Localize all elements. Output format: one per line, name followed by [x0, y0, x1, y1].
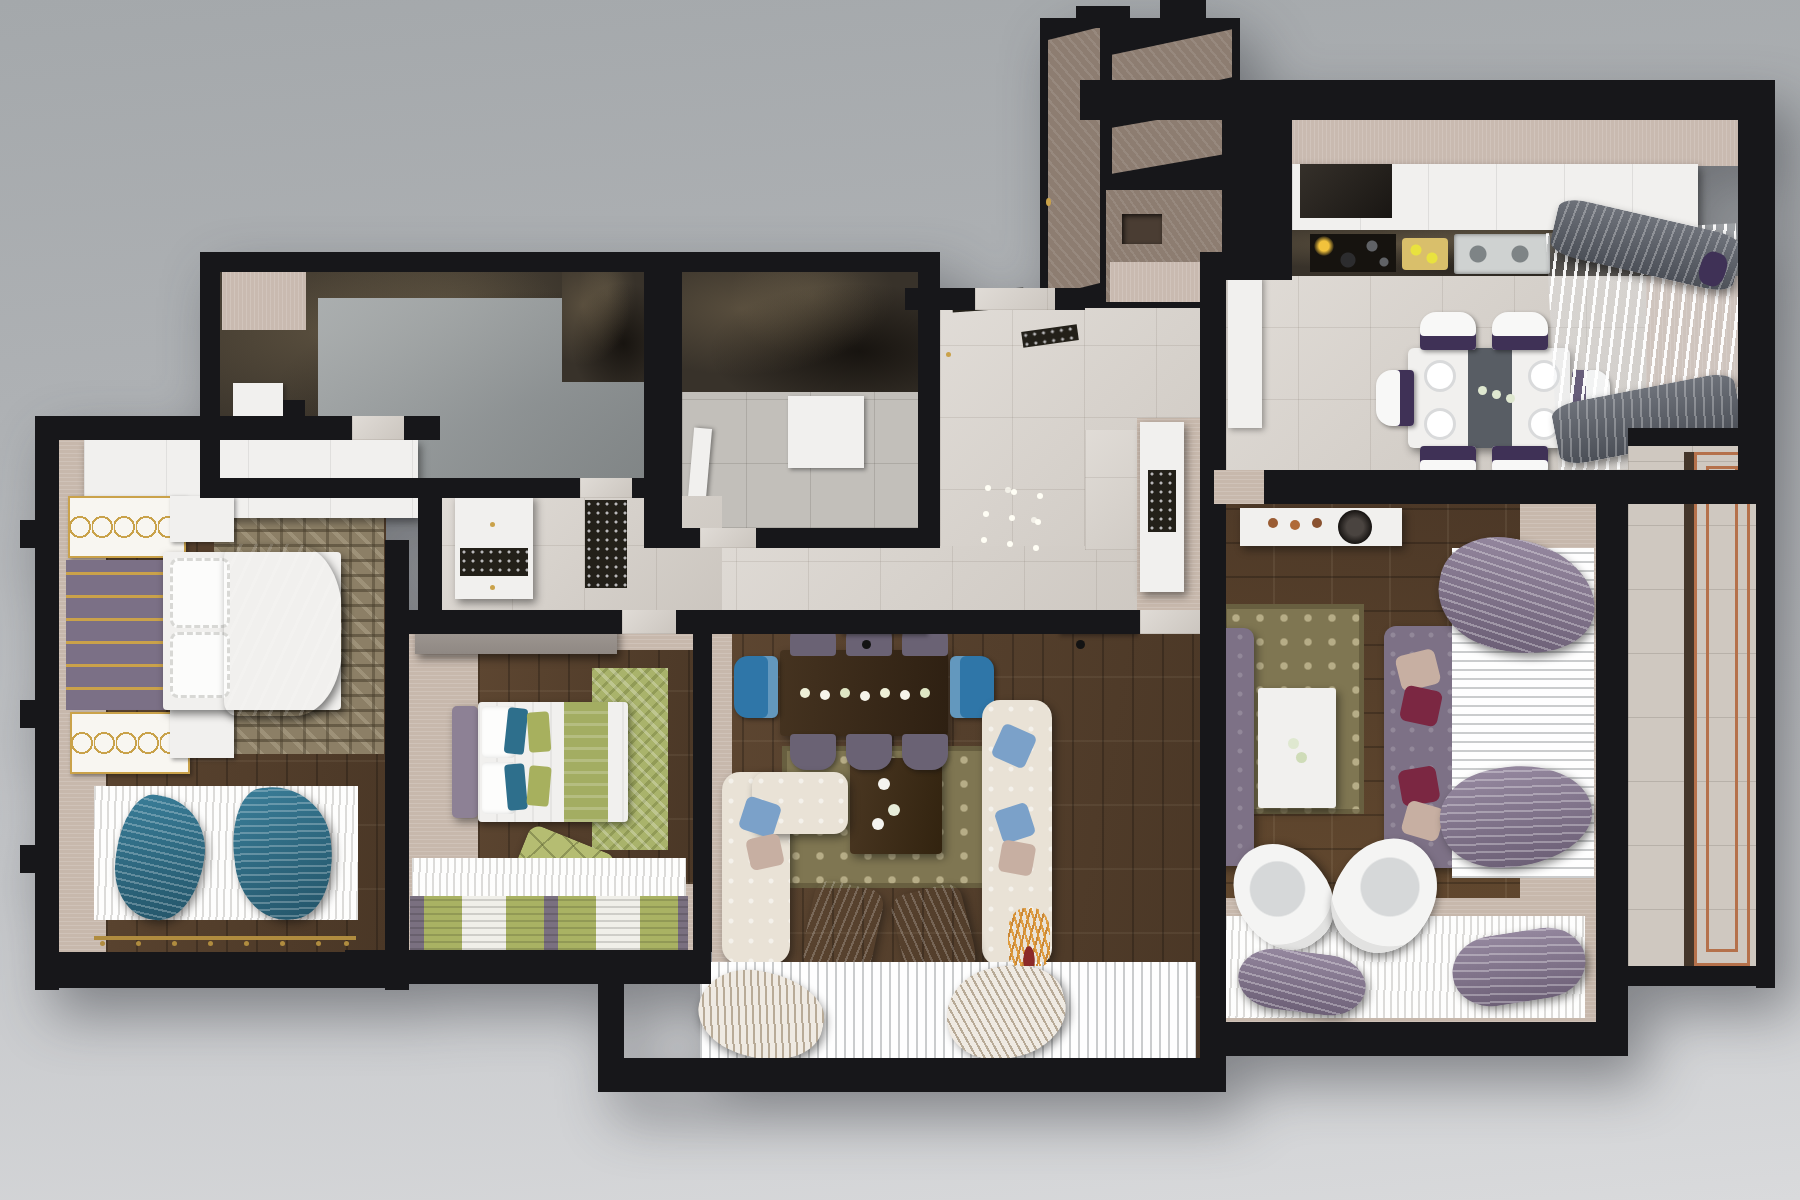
living-side-chair-s3	[902, 734, 948, 770]
wall-bathroom-left	[200, 252, 220, 498]
family-pillow-maroon-1	[1399, 684, 1444, 727]
room-family	[0, 0, 1800, 1200]
kitchen-extractor-hood	[1300, 164, 1392, 218]
balcony-floor	[1628, 446, 1756, 974]
family-fur-rug	[1225, 916, 1585, 1018]
wall-stub-master-left-1	[20, 520, 35, 548]
wall-corridor-left	[418, 478, 442, 618]
shower-room-upper	[682, 272, 918, 394]
living-end-chair-e	[950, 656, 994, 718]
room-living	[0, 0, 1800, 1200]
wall-bathroom-top	[200, 252, 660, 272]
kitchen-gas-hob	[1310, 234, 1396, 272]
entry-top-stub	[1076, 6, 1130, 28]
living-pillow-blush-1	[745, 833, 785, 871]
screenshot-canvas	[0, 0, 1800, 1200]
dining-plate-1	[1424, 360, 1456, 392]
bathroom-floor	[220, 270, 644, 478]
wall-balcony-bottom	[1628, 966, 1775, 986]
dining-chair-n2	[1492, 312, 1548, 350]
balcony-copper-rail-inner	[1706, 466, 1738, 952]
bedroom2-wall-band	[403, 628, 693, 952]
living-side-chair-s2	[846, 734, 892, 770]
dining-chair-n1	[1420, 312, 1476, 350]
family-south-band	[1215, 898, 1596, 1022]
master-purple-duvet	[224, 544, 342, 716]
living-pillow-blue-2	[990, 722, 1038, 770]
dining-table-runner	[1468, 348, 1512, 448]
dining-plate-4	[1528, 408, 1560, 440]
living-rug	[782, 746, 1010, 888]
bathroom-marble-column	[562, 272, 644, 382]
living-floor	[712, 632, 1202, 1062]
master-gold-ornament-panel-south	[70, 712, 190, 774]
wall-family-right	[1596, 488, 1628, 1048]
door-opening-shower	[700, 528, 756, 548]
master-gold-curtain-rod	[94, 936, 356, 940]
family-rug	[1222, 604, 1364, 814]
family-east-wall-cap	[1520, 498, 1596, 968]
dining-flower-vases	[1478, 386, 1487, 395]
family-coffee-table	[1258, 688, 1336, 808]
kitchen-wall-band	[1226, 118, 1740, 166]
dining-chair-w	[1376, 370, 1414, 426]
living-window-sheer	[700, 962, 1196, 1058]
living-coffee-table-flowers	[878, 778, 890, 790]
family-egg-chair-1	[1213, 824, 1353, 968]
balcony-copper-rail-outer	[1694, 452, 1750, 966]
living-side-chair-s1	[790, 734, 836, 770]
bedroom2-headboard	[452, 706, 478, 818]
dining-table	[1408, 348, 1570, 448]
family-coffee-table-flowers	[1288, 738, 1299, 749]
wall-living-top	[712, 610, 1202, 634]
kitchen-drape-north	[1548, 196, 1744, 295]
living-end-chair-w	[734, 656, 778, 718]
bedroom2-pillow-white-2	[482, 762, 516, 814]
door-opening-bathroom	[580, 478, 632, 498]
hall-spotlights	[985, 485, 991, 491]
master-teal-throw-2	[226, 781, 340, 926]
wall-bedroom2-bottom	[345, 950, 711, 984]
door-opening-bedroom2	[622, 610, 676, 634]
hall-cabinet	[455, 495, 533, 599]
living-dining-table	[780, 650, 948, 736]
master-pillow-ruffled-1	[170, 558, 230, 628]
shower-tray	[788, 396, 864, 468]
hall-floor-main	[940, 308, 1202, 634]
living-blue-chair-2	[888, 881, 984, 1001]
bedroom2-pillow-green-2	[526, 765, 551, 807]
wall-living-family	[1200, 252, 1226, 1072]
wall-master-left	[35, 416, 59, 990]
apartment-floor-plan	[0, 0, 1800, 1200]
balcony-timber-strip	[1684, 452, 1694, 966]
door-opening-living	[1140, 610, 1200, 634]
wall-stub-master-left-3	[20, 845, 35, 873]
master-teal-throw-1	[108, 790, 212, 925]
hall-runner-mat	[585, 500, 627, 588]
room-kitchen	[0, 0, 1800, 1200]
master-geometric-rug	[214, 476, 384, 754]
living-wall-speaker-1	[862, 640, 871, 649]
bedroom2-mattress	[478, 702, 628, 822]
wall-kitchen-vestibule-chunk	[1222, 80, 1292, 280]
family-floor-drape-left	[1235, 944, 1369, 1019]
master-gold-ornament-panel-north	[68, 496, 186, 558]
living-sectional-left-arm	[722, 772, 790, 964]
entry-wood-fin	[1048, 27, 1100, 296]
kitchen-drape-south	[1550, 371, 1744, 467]
family-pillow-blush-2	[1400, 799, 1446, 842]
kitchen-counter	[1292, 230, 1698, 276]
wall-kitchen-bottom	[1202, 470, 1740, 504]
master-pillow-ruffled-2	[170, 632, 230, 698]
hall-display-cabinet	[1140, 422, 1184, 592]
living-pillow-blue-3	[994, 802, 1037, 845]
kitchen-tall-cabinet	[1228, 276, 1262, 428]
master-bed-base	[163, 552, 341, 710]
living-blue-chair-1	[796, 878, 886, 994]
dining-chair-e	[1572, 370, 1610, 426]
bedroom2-pouf	[510, 823, 617, 911]
bedroom2-pillow-teal-2	[504, 763, 528, 811]
living-sectional-corner	[752, 772, 848, 834]
hall-cabinet-gold-pull	[490, 522, 495, 527]
master-floor	[106, 438, 386, 954]
room-entry	[0, 0, 1800, 1200]
entry-recessed-ceiling-niche	[1122, 214, 1162, 244]
bedroom2-striped-curtain	[410, 896, 688, 950]
bathroom-wall-ledge	[222, 272, 306, 330]
family-window-sheer	[1452, 548, 1594, 878]
wall-living-bottom	[598, 1058, 1226, 1092]
shower-room-floor	[682, 392, 918, 528]
bedroom2-fur-runner	[412, 858, 686, 898]
family-swag-north	[1429, 527, 1604, 665]
kitchen-floor	[1226, 276, 1646, 472]
family-egg-chair-2	[1312, 819, 1458, 971]
hall-cabinet-gold-pull-2	[490, 585, 495, 590]
master-nightstand-north	[170, 496, 234, 542]
bathroom-glass-screen	[318, 298, 644, 478]
family-floor-drape-right	[1447, 922, 1590, 1012]
wall-balcony-top	[1628, 428, 1775, 446]
family-pillow-blush-1	[1394, 648, 1442, 693]
family-console-copper-decor	[1268, 518, 1278, 528]
living-dried-gold-plant	[1008, 908, 1050, 966]
door-opening-master	[352, 416, 404, 440]
wall-kitchen-top	[1080, 80, 1775, 120]
hall-floor-north	[1085, 430, 1202, 550]
hall-display-cabinet-inlay	[1148, 470, 1176, 532]
room-balcony	[0, 0, 1800, 1200]
bedroom2-pillow-green-1	[527, 711, 552, 752]
living-fan-drape-right	[937, 953, 1076, 1071]
room-shower	[0, 0, 1800, 1200]
room-bedroom2	[0, 0, 1800, 1200]
bathroom-tub-deck	[233, 383, 283, 419]
wall-bath-divider	[644, 252, 682, 548]
kitchen-upper-cabinets	[1292, 164, 1698, 230]
master-rod-tassels	[100, 941, 105, 946]
kitchen-cutting-board	[1402, 238, 1448, 270]
wall-family-bottom	[1202, 1022, 1628, 1056]
living-wall-speaker-2	[1076, 640, 1085, 649]
wall-stub-bathroom-top	[283, 400, 305, 418]
living-west-wall-cap	[712, 632, 732, 1062]
dining-plate-2	[1424, 408, 1456, 440]
family-console-tray	[1338, 510, 1372, 544]
wall-master-bedroom2	[385, 540, 409, 990]
kitchen-drape-purple-tip	[1695, 249, 1730, 289]
master-headboard-wall	[66, 560, 166, 710]
master-nightstand-south	[170, 710, 234, 758]
master-wall-band-west	[58, 438, 106, 954]
shower-door-leaf	[686, 427, 712, 522]
hall-east-wall-cap	[1137, 418, 1202, 612]
wall-bedroom2-right	[693, 610, 712, 952]
dining-plate-3	[1528, 360, 1560, 392]
wall-shower-top	[682, 252, 940, 272]
family-swag-south	[1432, 754, 1599, 879]
living-dining-candle-row	[800, 688, 810, 698]
wall-living-sw-corner	[598, 984, 624, 1084]
living-pillow-blue-1	[738, 795, 783, 838]
entry-gold-door-handle	[1046, 198, 1051, 206]
door-opening-entry	[975, 288, 1055, 310]
living-coffee-table	[850, 758, 942, 854]
family-pillow-maroon-2	[1397, 765, 1441, 807]
bedroom2-pillow-teal-1	[504, 707, 529, 755]
family-floor	[1215, 498, 1525, 918]
wall-balcony-right	[1756, 428, 1775, 988]
family-console	[1240, 508, 1402, 546]
room-bathroom	[0, 0, 1800, 1200]
wall-stub-master-left-2	[20, 700, 35, 728]
living-sectional-right-arm	[982, 700, 1052, 966]
hall-cabinet-mosaic-inlay	[460, 548, 528, 576]
entry-top-stub-2	[1160, 0, 1206, 26]
living-pillow-blush-2	[997, 839, 1036, 876]
living-fan-drape-left	[690, 960, 831, 1070]
hall-sconce-gold	[946, 352, 951, 357]
bedroom2-pillow-white-1	[482, 706, 516, 758]
bedroom2-bed-runner	[564, 702, 608, 822]
bedroom2-herringbone-rug	[592, 668, 668, 850]
door-opening-family	[1214, 470, 1264, 504]
master-fur-rug	[94, 786, 358, 920]
room-master	[0, 0, 1800, 1200]
room-hallway	[0, 0, 1800, 1200]
family-sofa-east	[1384, 626, 1484, 868]
hall-ceiling-panel-2	[1021, 324, 1079, 348]
kitchen-double-sink	[1454, 234, 1550, 274]
bedroom2-floor	[478, 650, 693, 884]
